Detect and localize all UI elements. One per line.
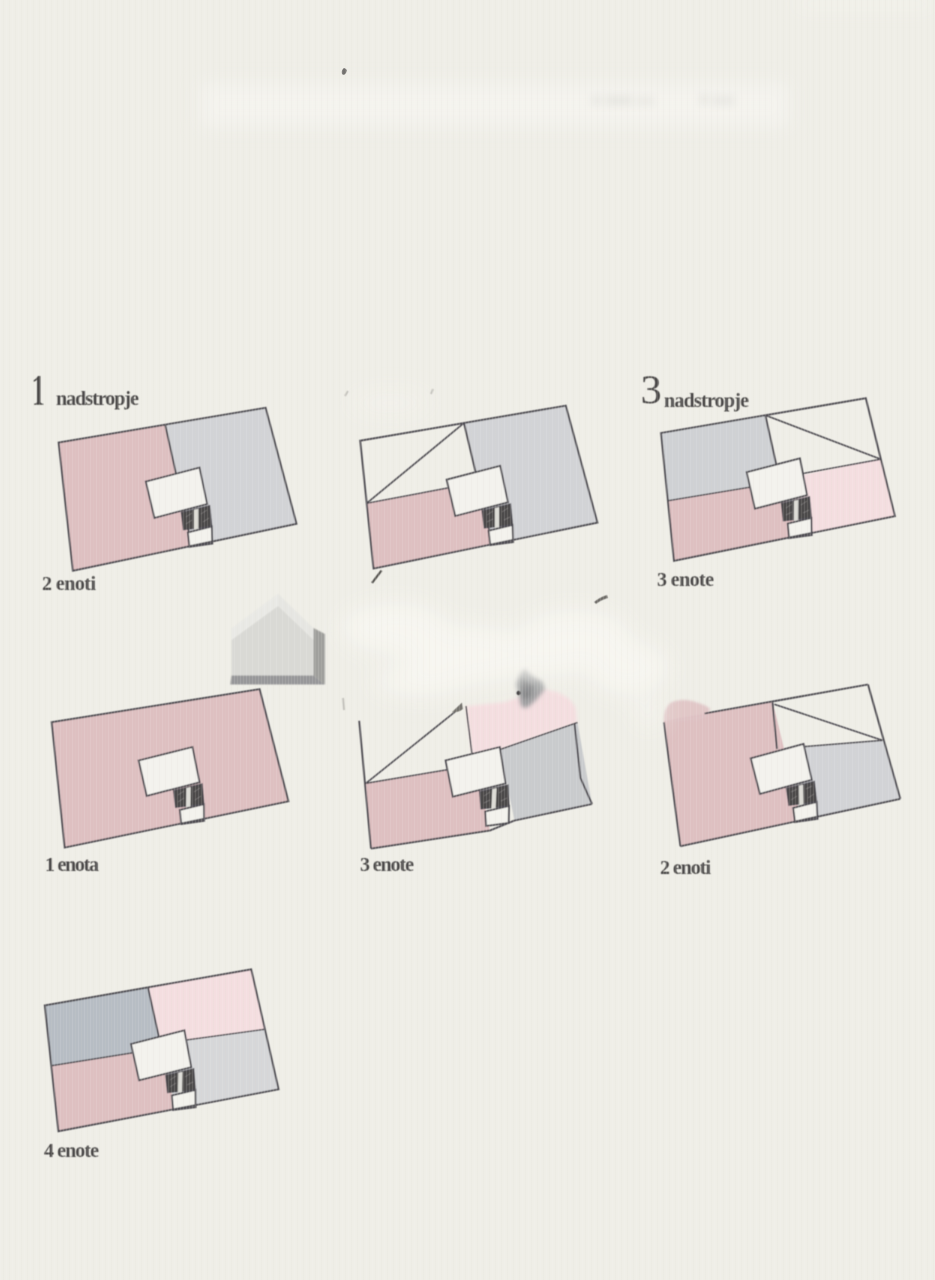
svg-text:3 enote: 3 enote: [360, 854, 414, 876]
svg-text:2 enoti: 2 enoti: [660, 857, 711, 879]
svg-text:3: 3: [641, 367, 662, 412]
svg-text:nadstropje: nadstropje: [664, 390, 749, 412]
svg-text:1 enota: 1 enota: [45, 854, 99, 876]
svg-text:2 enoti: 2 enoti: [42, 573, 96, 595]
svg-text:3 enote: 3 enote: [657, 569, 714, 591]
svg-text:nadstropje: nadstropje: [56, 388, 139, 410]
svg-text:4 enote: 4 enote: [44, 1140, 99, 1162]
